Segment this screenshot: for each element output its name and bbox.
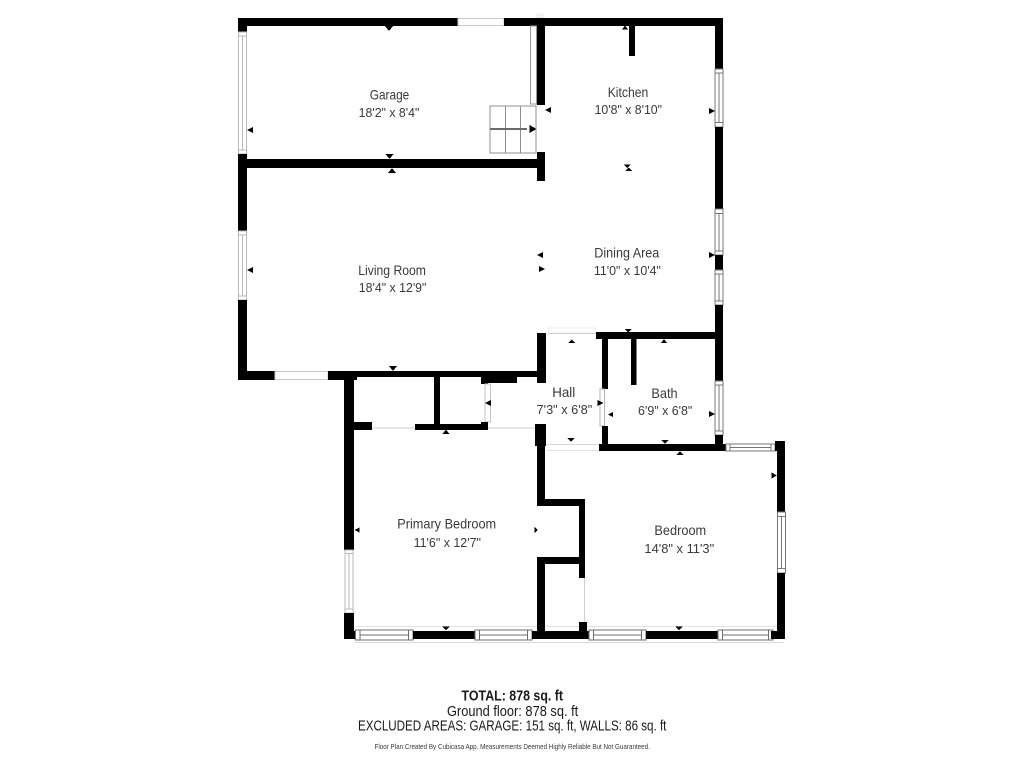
svg-text:11'0" x 10'4": 11'0" x 10'4" — [594, 263, 661, 278]
svg-text:6'9" x 6'8": 6'9" x 6'8" — [638, 403, 693, 418]
svg-text:Kitchen: Kitchen — [608, 84, 649, 100]
svg-text:10'8" x 8'10": 10'8" x 8'10" — [595, 102, 663, 117]
svg-text:18'2" x 8'4": 18'2" x 8'4" — [359, 105, 420, 120]
svg-text:Living Room: Living Room — [358, 262, 426, 278]
svg-text:Dining Area: Dining Area — [594, 245, 659, 261]
svg-text:Primary Bedroom: Primary Bedroom — [397, 516, 496, 532]
svg-text:11'6" x 12'7": 11'6" x 12'7" — [414, 535, 482, 550]
svg-text:18'4" x 12'9": 18'4" x 12'9" — [359, 280, 427, 295]
svg-text:Hall: Hall — [552, 384, 575, 400]
svg-text:14'8" x 11'3": 14'8" x 11'3" — [644, 541, 714, 556]
svg-text:Bath: Bath — [651, 385, 677, 401]
svg-text:Garage: Garage — [370, 87, 410, 103]
svg-text:EXCLUDED AREAS: GARAGE: 151 sq: EXCLUDED AREAS: GARAGE: 151 sq. ft, WALL… — [358, 719, 666, 735]
svg-text:Bedroom: Bedroom — [654, 522, 706, 538]
svg-text:Floor Plan Created By Cubicasa: Floor Plan Created By Cubicasa App. Meas… — [375, 742, 650, 751]
svg-text:TOTAL: 878 sq. ft: TOTAL: 878 sq. ft — [462, 689, 564, 705]
svg-text:7'3" x 6'8": 7'3" x 6'8" — [537, 402, 593, 417]
